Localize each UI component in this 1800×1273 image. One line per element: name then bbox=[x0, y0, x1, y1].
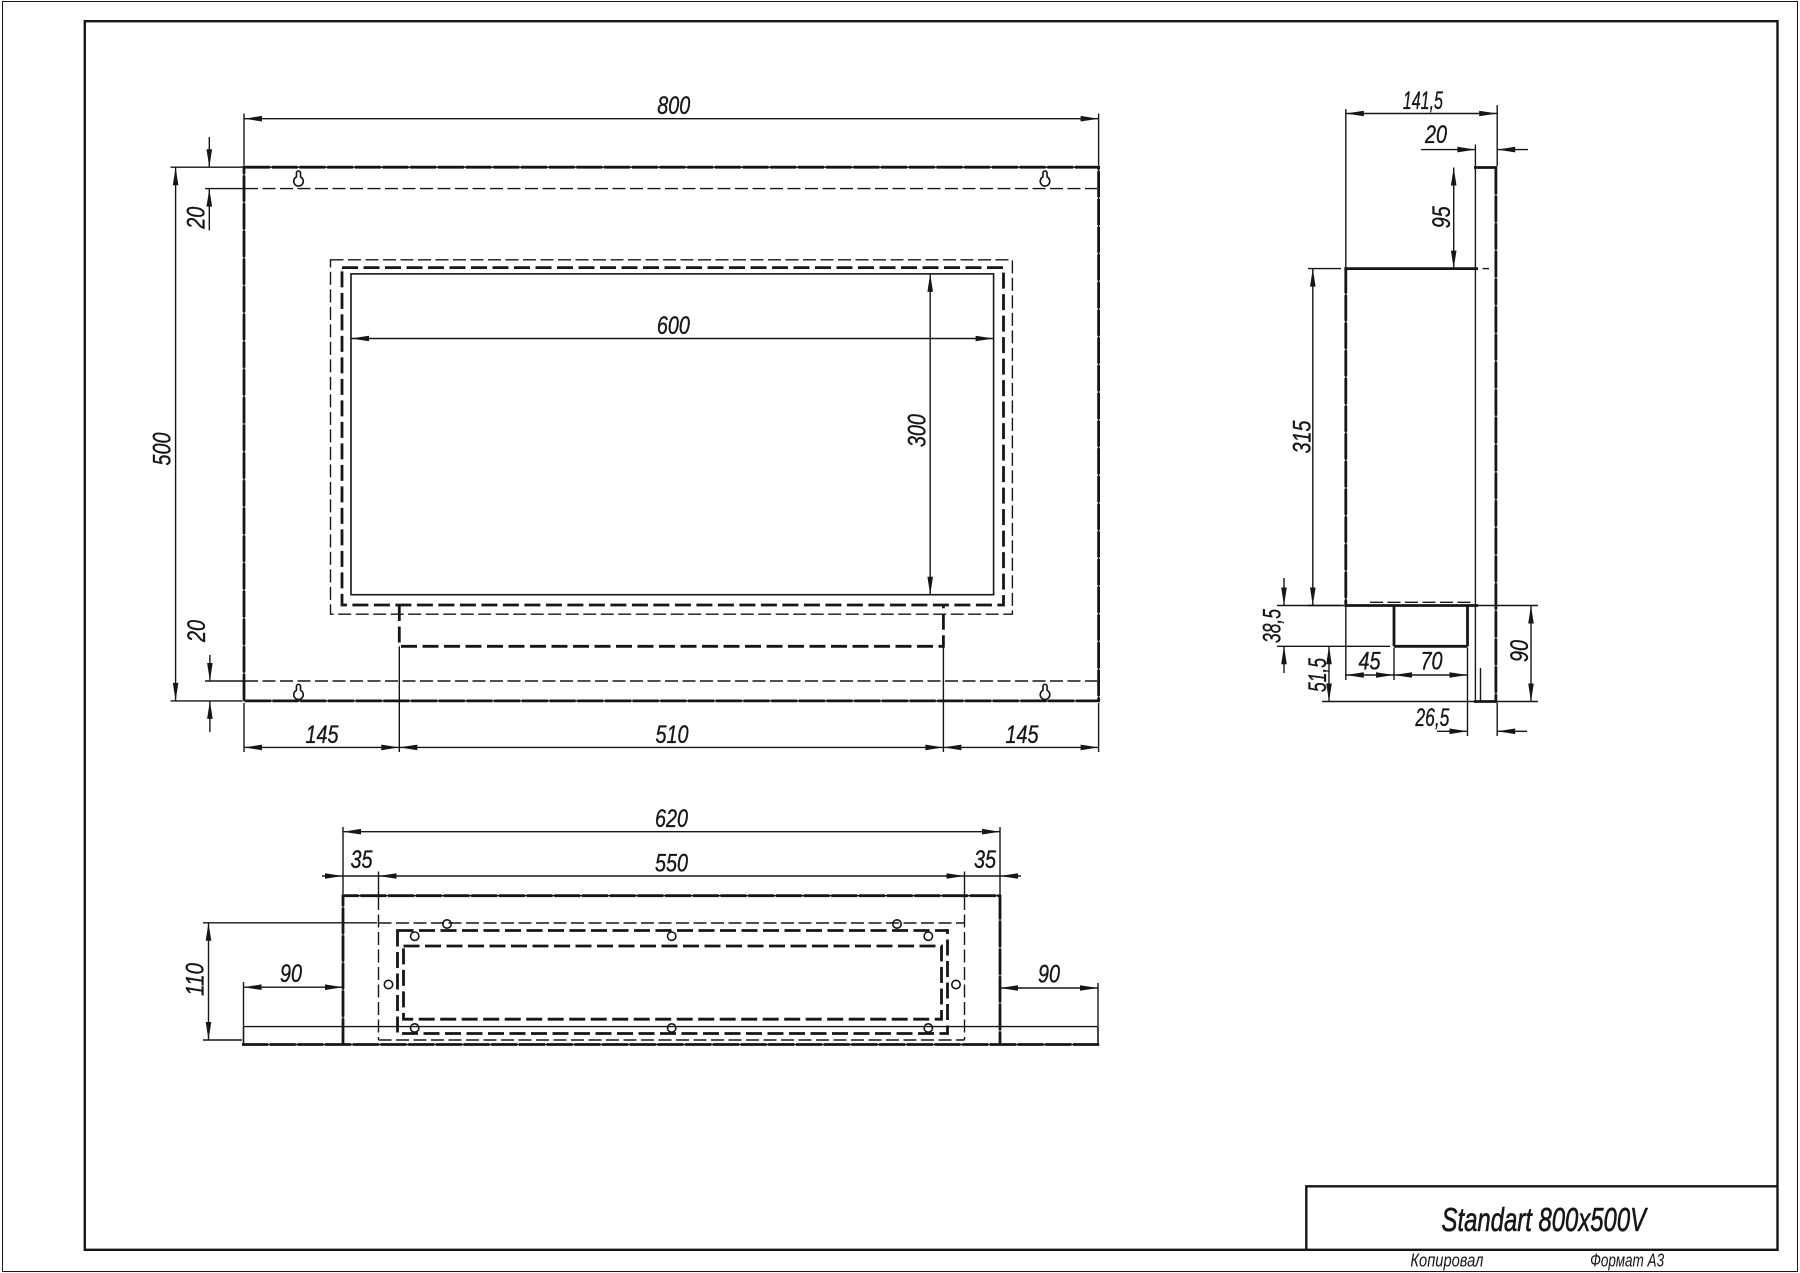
svg-text:500: 500 bbox=[149, 432, 177, 465]
svg-text:600: 600 bbox=[657, 312, 690, 340]
svg-text:510: 510 bbox=[656, 721, 689, 749]
svg-text:38,5: 38,5 bbox=[1259, 609, 1287, 643]
svg-text:145: 145 bbox=[306, 721, 339, 749]
svg-text:90: 90 bbox=[1506, 640, 1534, 662]
svg-text:20: 20 bbox=[1424, 121, 1447, 149]
svg-text:Standart 800x500V: Standart 800x500V bbox=[1442, 1201, 1649, 1238]
svg-text:51,5: 51,5 bbox=[1304, 658, 1332, 692]
svg-text:90: 90 bbox=[280, 960, 302, 988]
svg-text:110: 110 bbox=[182, 963, 210, 996]
svg-text:550: 550 bbox=[655, 850, 688, 878]
svg-text:300: 300 bbox=[904, 414, 932, 447]
svg-text:90: 90 bbox=[1038, 961, 1060, 989]
svg-text:141,5: 141,5 bbox=[1403, 87, 1443, 115]
svg-text:20: 20 bbox=[183, 207, 211, 230]
svg-text:20: 20 bbox=[183, 620, 211, 643]
svg-text:95: 95 bbox=[1428, 206, 1456, 228]
svg-text:620: 620 bbox=[655, 805, 688, 833]
svg-text:Формат А3: Формат А3 bbox=[1590, 1251, 1664, 1271]
svg-text:35: 35 bbox=[351, 846, 373, 874]
svg-text:Копировал: Копировал bbox=[1410, 1251, 1483, 1271]
svg-text:800: 800 bbox=[657, 92, 690, 120]
svg-text:45: 45 bbox=[1359, 648, 1381, 676]
svg-text:315: 315 bbox=[1289, 420, 1317, 453]
svg-text:35: 35 bbox=[974, 846, 996, 874]
svg-text:145: 145 bbox=[1006, 721, 1039, 749]
svg-text:26,5: 26,5 bbox=[1415, 704, 1450, 732]
svg-text:70: 70 bbox=[1421, 648, 1443, 676]
